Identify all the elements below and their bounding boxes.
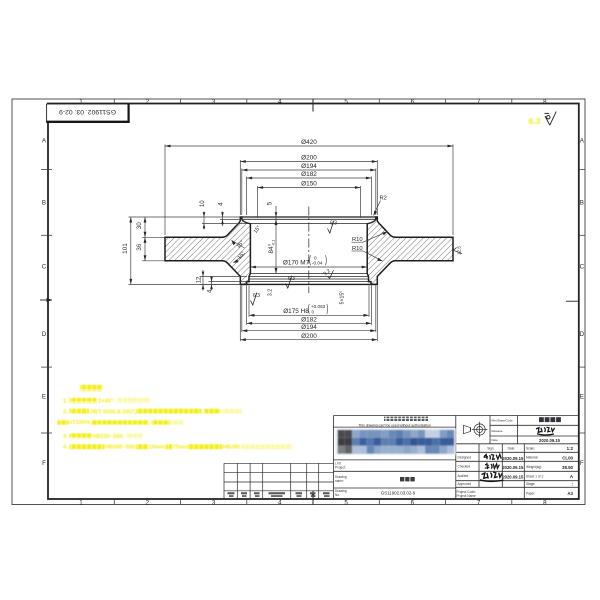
svg-text:E: E — [580, 393, 584, 400]
svg-text:2: 2 — [146, 499, 150, 506]
svg-text:UT100%,: UT100%, — [68, 420, 92, 426]
svg-text:6: 6 — [411, 499, 415, 506]
svg-text:2×45°;: 2×45°; — [98, 399, 115, 405]
svg-text:No.: No. — [335, 493, 340, 497]
svg-text:CL00: CL00 — [562, 455, 573, 460]
svg-text:2.: 2. — [63, 409, 68, 415]
svg-text:C: C — [580, 263, 585, 270]
svg-text:Ø200: Ø200 — [301, 333, 317, 340]
svg-text:Approved: Approved — [458, 482, 472, 486]
svg-text:B: B — [580, 200, 584, 207]
svg-text:Rev/State/Code: Rev/State/Code — [492, 418, 514, 422]
svg-text:-0.1: -0.1 — [271, 240, 275, 246]
svg-text:12: 12 — [196, 276, 202, 283]
svg-text:84: 84 — [268, 246, 275, 254]
svg-text:Stage:: Stage: — [526, 482, 535, 486]
svg-text:C: C — [42, 263, 47, 270]
svg-text:Checked: Checked — [458, 465, 471, 469]
svg-text:101: 101 — [122, 243, 129, 254]
svg-text:38.50: 38.50 — [562, 465, 574, 470]
svg-text:Ø175 H8: Ø175 H8 — [283, 308, 309, 315]
svg-text:Ø194: Ø194 — [301, 324, 317, 331]
svg-text:Date: Date — [492, 438, 499, 442]
svg-text:GS11902.03.02-9: GS11902.03.02-9 — [381, 491, 416, 496]
svg-text:1: 1 — [79, 499, 83, 506]
svg-text:JB/T 5000.8-2007,: JB/T 5000.8-2007, — [90, 409, 137, 415]
svg-text:Project:: Project: — [335, 466, 346, 470]
svg-text:12.5: 12.5 — [457, 246, 462, 255]
svg-text:name:: name: — [335, 479, 344, 483]
svg-text:36: 36 — [136, 243, 143, 251]
svg-text:Ø200: Ø200 — [301, 155, 317, 162]
svg-text:6.3: 6.3 — [288, 276, 295, 282]
svg-text:5×15°: 5×15° — [340, 291, 346, 305]
svg-text:F: F — [42, 460, 46, 467]
svg-text:Scale:: Scale: — [526, 446, 535, 450]
svg-text:HB280: HB280 — [223, 445, 240, 451]
svg-text:2020.09.15: 2020.09.15 — [539, 438, 561, 443]
svg-text:5: 5 — [344, 499, 348, 506]
svg-text:HB220~260;: HB220~260; — [92, 434, 124, 440]
svg-text:30: 30 — [136, 222, 143, 230]
svg-text:7: 7 — [477, 499, 481, 506]
svg-text:Date: Date — [508, 446, 515, 450]
svg-text:4.: 4. — [63, 445, 68, 451]
svg-text:-0.04: -0.04 — [312, 261, 323, 266]
svg-text:B: B — [42, 200, 46, 207]
svg-text:GS11902. 03. 02-9: GS11902. 03. 02-9 — [59, 108, 116, 115]
svg-text:HB500~550,: HB500~550, — [105, 445, 137, 451]
svg-text:1.: 1. — [63, 399, 68, 405]
svg-text:5: 5 — [344, 99, 348, 106]
svg-text:6.3: 6.3 — [330, 221, 337, 227]
svg-text:6.3: 6.3 — [529, 116, 541, 126]
svg-text:F: F — [580, 460, 584, 467]
svg-text:This drawing can't be used wit: This drawing can't be used without autho… — [358, 423, 430, 427]
svg-text:Project Name: Project Name — [457, 494, 477, 498]
svg-text:D: D — [580, 331, 585, 338]
svg-text:8: 8 — [543, 99, 547, 106]
svg-text:Paper:: Paper: — [526, 492, 536, 496]
svg-text:A3: A3 — [567, 491, 573, 496]
svg-text:6: 6 — [411, 99, 415, 106]
svg-text:6.3: 6.3 — [253, 293, 260, 299]
svg-text:10mm,: 10mm, — [149, 445, 167, 451]
svg-text:Ø194: Ø194 — [301, 163, 317, 170]
svg-text:Sign: Sign — [487, 446, 494, 450]
svg-text:3: 3 — [212, 499, 216, 506]
svg-text:Weight(kg):: Weight(kg): — [526, 465, 542, 469]
svg-text:Ø420: Ø420 — [301, 139, 317, 146]
svg-text:Ø182: Ø182 — [301, 317, 317, 324]
svg-text:1:2: 1:2 — [567, 446, 574, 451]
svg-text:0: 0 — [312, 309, 315, 314]
svg-text:10: 10 — [200, 200, 206, 207]
svg-text:3.: 3. — [63, 434, 68, 440]
svg-text:2020.09.15: 2020.09.15 — [502, 465, 524, 470]
svg-text:Material:: Material: — [526, 456, 538, 460]
svg-text:Ø170 M7: Ø170 M7 — [283, 260, 310, 267]
svg-text:Ø182: Ø182 — [301, 171, 317, 178]
svg-text:Audited: Audited — [458, 474, 469, 478]
svg-text:Ø150: Ø150 — [301, 181, 317, 188]
svg-text:4: 4 — [278, 499, 282, 506]
svg-text:3: 3 — [212, 99, 216, 106]
svg-text:2020.09.15: 2020.09.15 — [502, 475, 524, 480]
svg-text:75mm: 75mm — [173, 445, 189, 451]
svg-text:2020.09.15: 2020.09.15 — [502, 456, 524, 461]
svg-text:Designed: Designed — [458, 455, 472, 459]
svg-text:3.2: 3.2 — [268, 289, 274, 296]
svg-text:4: 4 — [278, 99, 282, 106]
svg-text:Sheet 1 of 1:: Sheet 1 of 1: — [526, 474, 544, 478]
svg-text:2: 2 — [146, 99, 150, 106]
svg-text:E: E — [42, 393, 46, 400]
svg-text:Release: Release — [492, 429, 503, 433]
svg-text:8: 8 — [543, 499, 547, 506]
svg-text:7: 7 — [477, 99, 481, 106]
svg-text:D: D — [42, 331, 47, 338]
